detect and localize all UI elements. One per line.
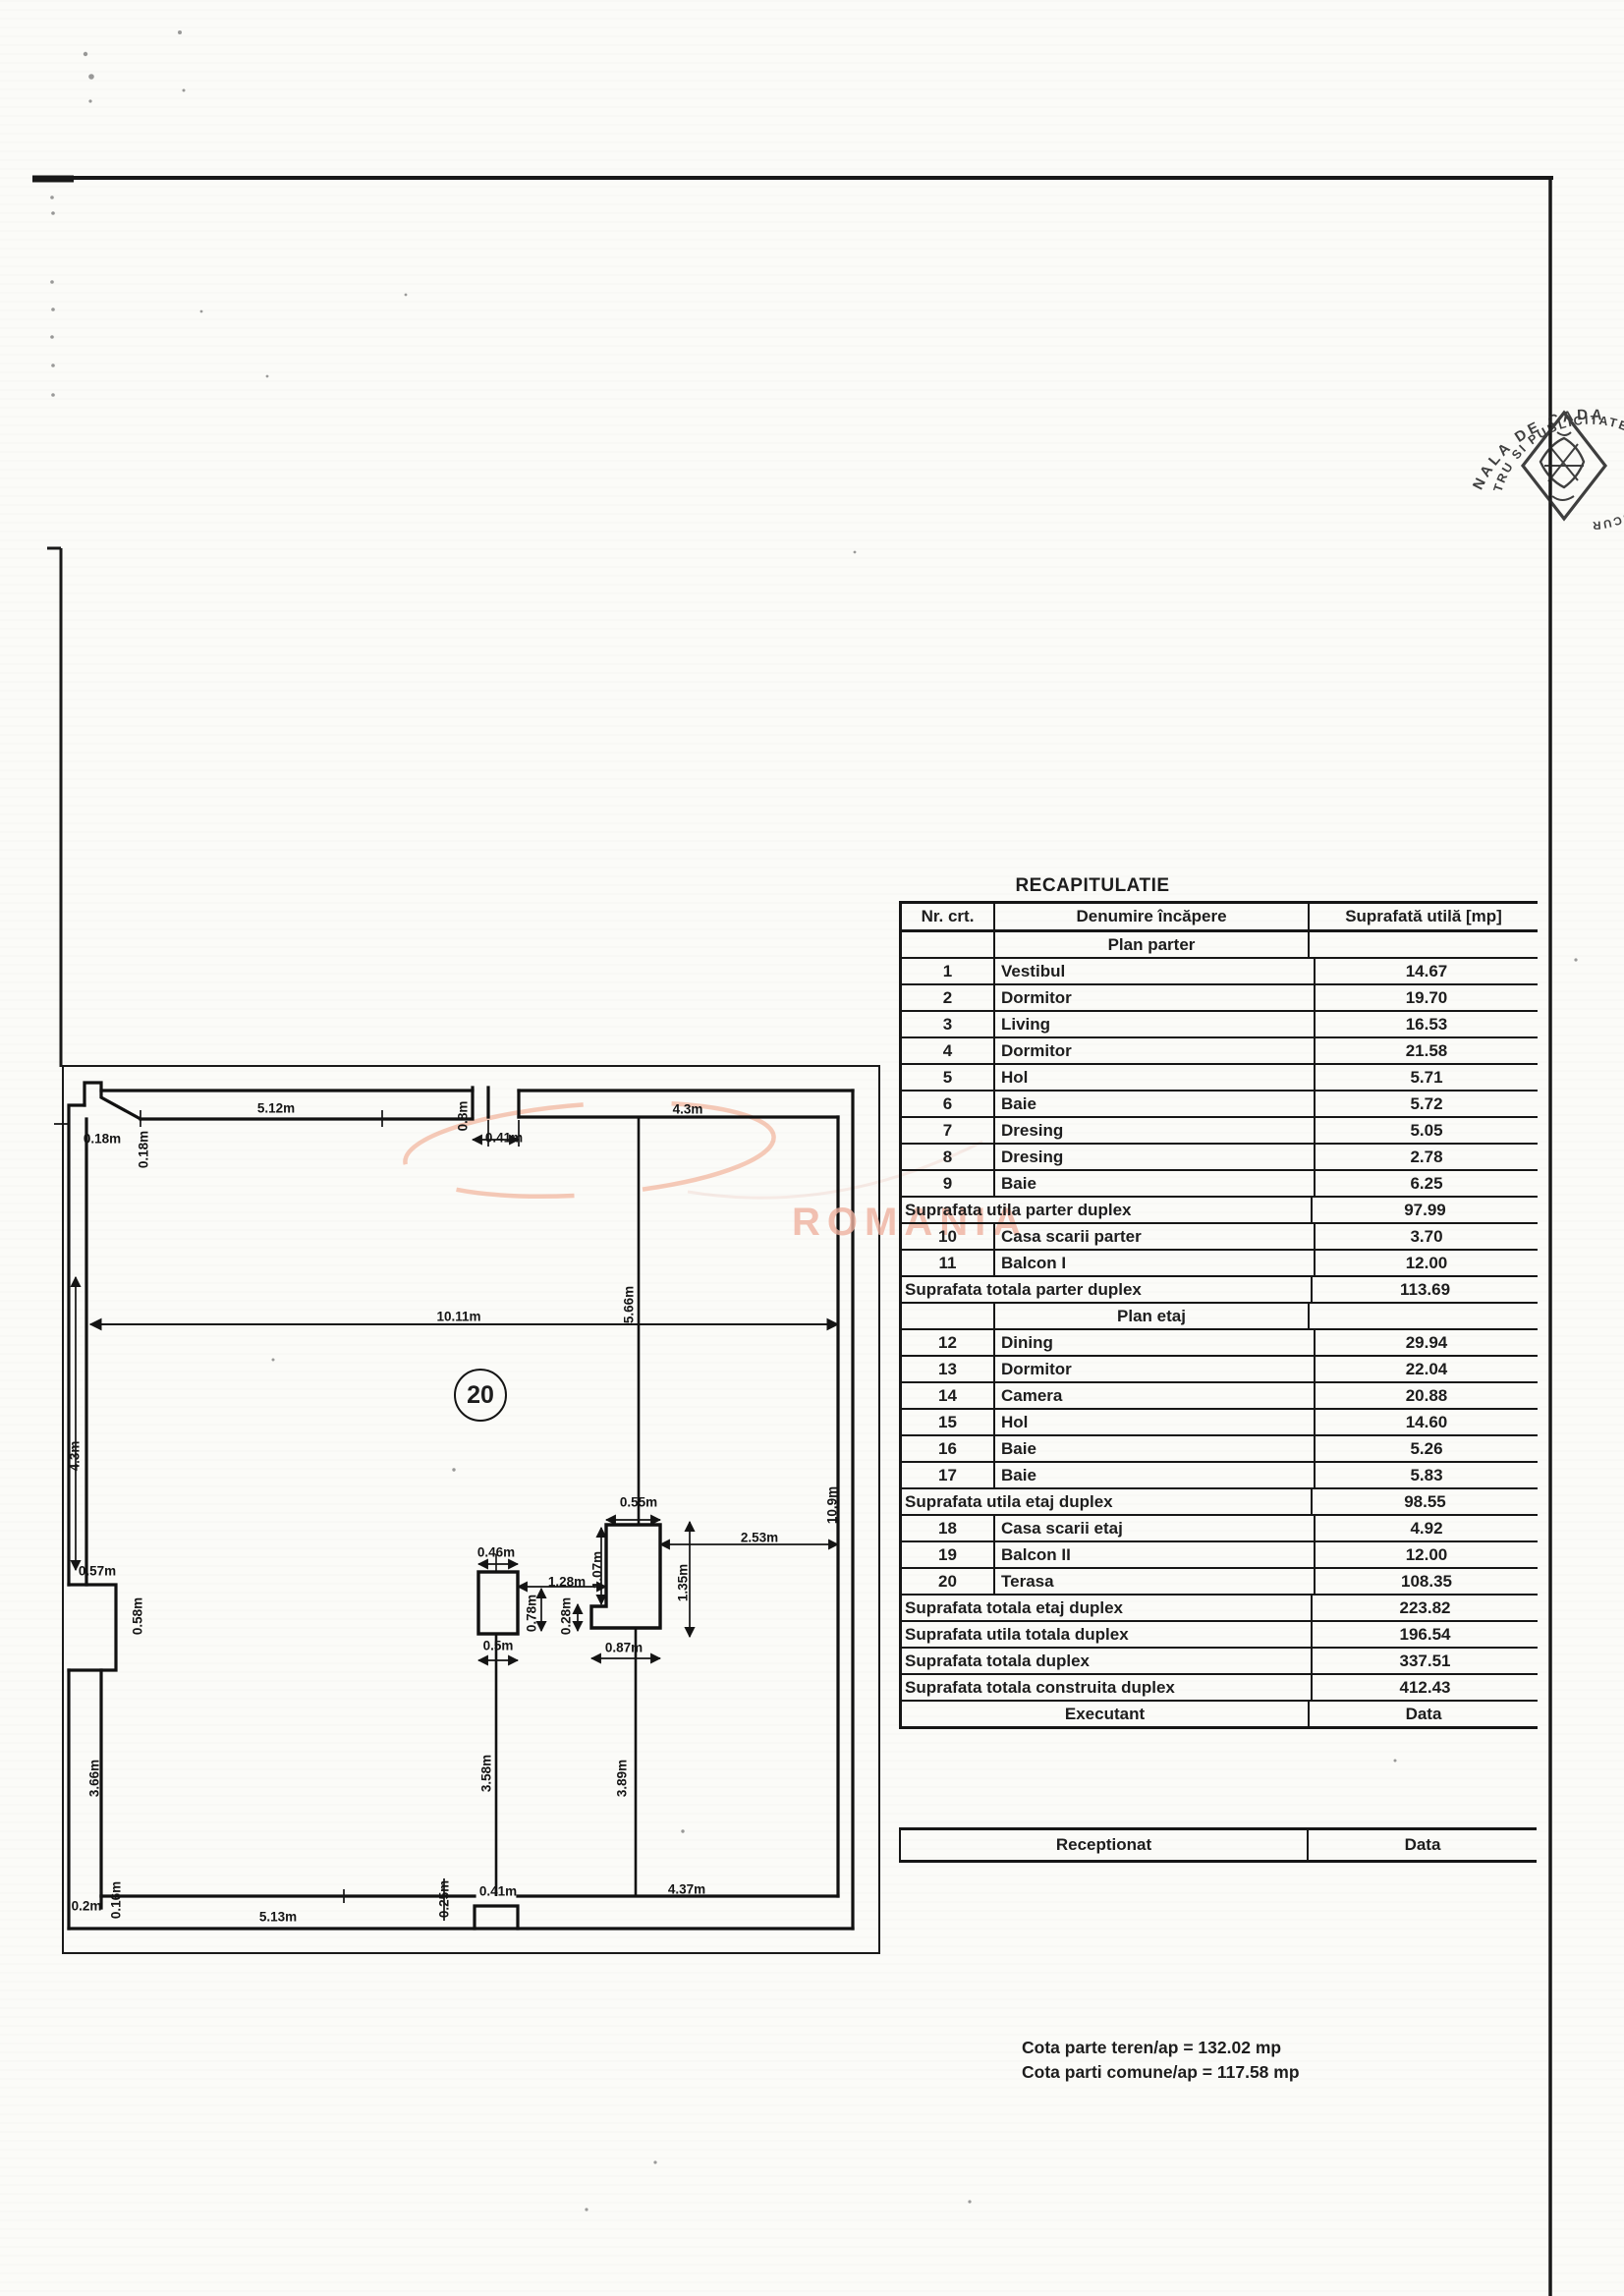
cell-nr: 15 bbox=[902, 1410, 995, 1434]
section-row: Plan etaj bbox=[902, 1304, 1538, 1330]
cell-name: Hol bbox=[995, 1410, 1316, 1434]
header-nr: Nr. crt. bbox=[902, 904, 995, 929]
cell-nr: 8 bbox=[902, 1145, 995, 1169]
cell-value: 14.67 bbox=[1316, 959, 1538, 983]
table-header-row: Nr. crt. Denumire încăpere Suprafată uti… bbox=[902, 904, 1538, 932]
cell-value: 412.43 bbox=[1313, 1675, 1538, 1700]
cell-nr: 16 bbox=[902, 1436, 995, 1461]
cell-total-name: Suprafata totala construita duplex bbox=[902, 1675, 1313, 1700]
table-row: 15Hol14.60 bbox=[902, 1410, 1538, 1436]
cell-nr: 14 bbox=[902, 1383, 995, 1408]
cell-value: 19.70 bbox=[1316, 985, 1538, 1010]
cell-nr: 19 bbox=[902, 1542, 995, 1567]
dim-label: 0.57m bbox=[79, 1564, 116, 1579]
unit-number: 20 bbox=[467, 1381, 494, 1410]
table-row: 2Dormitor19.70 bbox=[902, 985, 1538, 1012]
dim-label: 1.07m bbox=[590, 1551, 605, 1589]
cell-section-name: Plan etaj bbox=[995, 1304, 1310, 1328]
table-row: 9Baie6.25 bbox=[902, 1171, 1538, 1198]
dim-label: 3.58m bbox=[479, 1755, 494, 1792]
cell-nr: 5 bbox=[902, 1065, 995, 1090]
cell-name: Dormitor bbox=[995, 1038, 1316, 1063]
cell-value: 3.70 bbox=[1316, 1224, 1538, 1249]
cell-name: Dormitor bbox=[995, 985, 1316, 1010]
cell-nr: 11 bbox=[902, 1251, 995, 1275]
cell-value: 196.54 bbox=[1313, 1622, 1538, 1647]
cell-value: 2.78 bbox=[1316, 1145, 1538, 1169]
cell-nr: 3 bbox=[902, 1012, 995, 1036]
cell-name: Dining bbox=[995, 1330, 1316, 1355]
dim-label: 3.66m bbox=[87, 1760, 102, 1797]
dim-label: 0.25m bbox=[437, 1880, 452, 1918]
cell-total-name: Suprafata utila parter duplex bbox=[902, 1198, 1313, 1222]
cell-name: Baie bbox=[995, 1463, 1316, 1487]
cell-nr: 10 bbox=[902, 1224, 995, 1249]
cell-nr: 17 bbox=[902, 1463, 995, 1487]
cell-total-name: Suprafata totala etaj duplex bbox=[902, 1596, 1313, 1620]
table-row: 20Terasa108.35 bbox=[902, 1569, 1538, 1596]
cell-value: 5.05 bbox=[1316, 1118, 1538, 1143]
cell-executant: Executant bbox=[902, 1702, 1310, 1726]
total-row: Suprafata totala construita duplex412.43 bbox=[902, 1675, 1538, 1702]
cell-total-name: Suprafata totala parter duplex bbox=[902, 1277, 1313, 1302]
footer-row: ExecutantData bbox=[902, 1702, 1538, 1726]
recap-table: Nr. crt. Denumire încăpere Suprafată uti… bbox=[899, 901, 1538, 1729]
dim-label: 0.16m bbox=[109, 1881, 124, 1919]
cell-value bbox=[1310, 1304, 1538, 1328]
table-row: 7Dresing5.05 bbox=[902, 1118, 1538, 1145]
cell-value: 14.60 bbox=[1316, 1410, 1538, 1434]
total-row: Suprafata utila parter duplex97.99 bbox=[902, 1198, 1538, 1224]
dim-label: 5.66m bbox=[622, 1286, 637, 1323]
cell-nr: 9 bbox=[902, 1171, 995, 1196]
cell-value: 21.58 bbox=[1316, 1038, 1538, 1063]
cell-nr: 1 bbox=[902, 959, 995, 983]
table-row: 14Camera20.88 bbox=[902, 1383, 1538, 1410]
dim-label: 4.37m bbox=[668, 1882, 705, 1897]
dim-label: 0.41m bbox=[485, 1131, 523, 1146]
dim-label: 0.2m bbox=[72, 1899, 102, 1914]
dim-label: 5.13m bbox=[259, 1910, 297, 1925]
cell-section-name: Plan parter bbox=[995, 932, 1310, 957]
table-row: 12Dining29.94 bbox=[902, 1330, 1538, 1357]
cell-nr: 12 bbox=[902, 1330, 995, 1355]
dim-label: 0.58m bbox=[131, 1597, 145, 1635]
cell-nr: 4 bbox=[902, 1038, 995, 1063]
dim-label: 1.28m bbox=[548, 1575, 586, 1590]
quota-notes: Cota parte teren/ap = 132.02 mp Cota par… bbox=[1022, 2036, 1300, 2085]
cell-total-name: Suprafata totala duplex bbox=[902, 1649, 1313, 1673]
cell-value: 5.83 bbox=[1316, 1463, 1538, 1487]
table-row: 17Baie5.83 bbox=[902, 1463, 1538, 1489]
cell-name: Living bbox=[995, 1012, 1316, 1036]
cell-name: Balcon I bbox=[995, 1251, 1316, 1275]
total-row: Suprafata totala parter duplex113.69 bbox=[902, 1277, 1538, 1304]
cell-nr: 18 bbox=[902, 1516, 995, 1540]
cell-nr bbox=[902, 1304, 995, 1328]
cell-nr bbox=[902, 932, 995, 957]
cell-value bbox=[1310, 932, 1538, 957]
cell-name: Baie bbox=[995, 1436, 1316, 1461]
cell-value: 22.04 bbox=[1316, 1357, 1538, 1381]
dim-label: 10.11m bbox=[436, 1310, 480, 1324]
cell-name: Dormitor bbox=[995, 1357, 1316, 1381]
cell-value: 337.51 bbox=[1313, 1649, 1538, 1673]
scanned-cadastral-document: ROMANIA bbox=[0, 0, 1624, 2296]
cell-value: 98.55 bbox=[1313, 1489, 1538, 1514]
unit-number-badge: 20 bbox=[454, 1369, 507, 1422]
dim-label: 4.3m bbox=[673, 1102, 703, 1117]
cell-value: 12.00 bbox=[1316, 1251, 1538, 1275]
cell-nr: 6 bbox=[902, 1092, 995, 1116]
table-row: 5Hol5.71 bbox=[902, 1065, 1538, 1092]
cell-value: 6.25 bbox=[1316, 1171, 1538, 1196]
total-row: Suprafata utila etaj duplex98.55 bbox=[902, 1489, 1538, 1516]
dim-label: 0.55m bbox=[620, 1495, 657, 1510]
table-row: 13Dormitor22.04 bbox=[902, 1357, 1538, 1383]
dim-label: 0.5m bbox=[483, 1639, 514, 1653]
cell-value: 20.88 bbox=[1316, 1383, 1538, 1408]
total-row: Suprafata totala duplex337.51 bbox=[902, 1649, 1538, 1675]
dim-label: 5.12m bbox=[257, 1101, 295, 1116]
dim-label: 1.35m bbox=[676, 1564, 691, 1601]
svg-text:TRU SI PUBLICITATE: TRU SI PUBLICITATE bbox=[1491, 414, 1624, 494]
cell-total-name: Suprafata utila etaj duplex bbox=[902, 1489, 1313, 1514]
table-row: 8Dresing2.78 bbox=[902, 1145, 1538, 1171]
table-row: 19Balcon II12.00 bbox=[902, 1542, 1538, 1569]
cell-nr: 2 bbox=[902, 985, 995, 1010]
dim-label: 0.78m bbox=[525, 1595, 539, 1632]
cell-name: Vestibul bbox=[995, 959, 1316, 983]
cell-value: 5.72 bbox=[1316, 1092, 1538, 1116]
section-row: Plan parter bbox=[902, 932, 1538, 959]
table-row: 3Living16.53 bbox=[902, 1012, 1538, 1038]
cell-name: Hol bbox=[995, 1065, 1316, 1090]
reception-date-label: Data bbox=[1309, 1830, 1537, 1860]
reception-label: Receptionat bbox=[901, 1830, 1309, 1860]
dimension-lines bbox=[54, 1110, 838, 1921]
cell-value: 113.69 bbox=[1313, 1277, 1538, 1302]
cell-name: Dresing bbox=[995, 1118, 1316, 1143]
cell-name: Dresing bbox=[995, 1145, 1316, 1169]
dim-label: 0.18m bbox=[84, 1132, 121, 1147]
cell-value: 29.94 bbox=[1316, 1330, 1538, 1355]
header-denumire: Denumire încăpere bbox=[995, 904, 1310, 929]
cell-value: 5.71 bbox=[1316, 1065, 1538, 1090]
dim-label: 10.9m bbox=[825, 1486, 840, 1524]
dim-label: 3.89m bbox=[615, 1760, 630, 1797]
table-row: 4Dormitor21.58 bbox=[902, 1038, 1538, 1065]
cell-value: 5.26 bbox=[1316, 1436, 1538, 1461]
header-suprafata: Suprafată utilă [mp] bbox=[1310, 904, 1538, 929]
table-row: 6Baie5.72 bbox=[902, 1092, 1538, 1118]
cell-name: Baie bbox=[995, 1171, 1316, 1196]
dim-label: 0.8m bbox=[456, 1101, 471, 1132]
cell-value: 223.82 bbox=[1313, 1596, 1538, 1620]
table-row: 16Baie5.26 bbox=[902, 1436, 1538, 1463]
cell-nr: 7 bbox=[902, 1118, 995, 1143]
table-row: 1Vestibul14.67 bbox=[902, 959, 1538, 985]
cell-nr: 20 bbox=[902, 1569, 995, 1594]
cell-value: 16.53 bbox=[1316, 1012, 1538, 1036]
dim-label: 2.53m bbox=[741, 1531, 778, 1545]
dim-label: 0.18m bbox=[137, 1131, 151, 1168]
chimney-block bbox=[478, 1572, 518, 1634]
table-row: 11Balcon I12.00 bbox=[902, 1251, 1538, 1277]
table-row: 18Casa scarii etaj4.92 bbox=[902, 1516, 1538, 1542]
total-row: Suprafata utila totala duplex196.54 bbox=[902, 1622, 1538, 1649]
cell-name: Casa scarii parter bbox=[995, 1224, 1316, 1249]
total-row: Suprafata totala etaj duplex223.82 bbox=[902, 1596, 1538, 1622]
cell-total-name: Suprafata utila totala duplex bbox=[902, 1622, 1313, 1647]
cell-value: 97.99 bbox=[1313, 1198, 1538, 1222]
quota-note-line2: Cota parti comune/ap = 117.58 mp bbox=[1022, 2060, 1300, 2085]
dim-label: 0.87m bbox=[605, 1641, 643, 1655]
cell-name: Terasa bbox=[995, 1569, 1316, 1594]
cell-value: 108.35 bbox=[1316, 1569, 1538, 1594]
cell-value: 12.00 bbox=[1316, 1542, 1538, 1567]
reception-row: Receptionat Data bbox=[899, 1827, 1537, 1863]
round-stamp: NALA DE CADA TRU SI PUBLICITATE IMOBIL U… bbox=[1470, 407, 1624, 545]
cell-nr: 13 bbox=[902, 1357, 995, 1381]
terrace-walls bbox=[69, 1083, 853, 1929]
quota-note-line1: Cota parte teren/ap = 132.02 mp bbox=[1022, 2036, 1300, 2060]
svg-text:ULUI BUCUR: ULUI BUCUR bbox=[1591, 475, 1624, 532]
cell-data: Data bbox=[1310, 1702, 1538, 1726]
dim-label: 4.3m bbox=[68, 1441, 83, 1472]
table-row: 10Casa scarii parter3.70 bbox=[902, 1224, 1538, 1251]
table-rows: Plan parter1Vestibul14.672Dormitor19.703… bbox=[902, 932, 1538, 1726]
recap-title: RECAPITULATIE bbox=[1015, 875, 1169, 897]
cell-name: Baie bbox=[995, 1092, 1316, 1116]
dim-label: 0.46m bbox=[477, 1545, 515, 1560]
cell-name: Camera bbox=[995, 1383, 1316, 1408]
dim-label: 0.28m bbox=[559, 1597, 574, 1635]
dim-label: 0.41m bbox=[479, 1884, 517, 1899]
cell-value: 4.92 bbox=[1316, 1516, 1538, 1540]
cell-name: Balcon II bbox=[995, 1542, 1316, 1567]
cell-name: Casa scarii etaj bbox=[995, 1516, 1316, 1540]
